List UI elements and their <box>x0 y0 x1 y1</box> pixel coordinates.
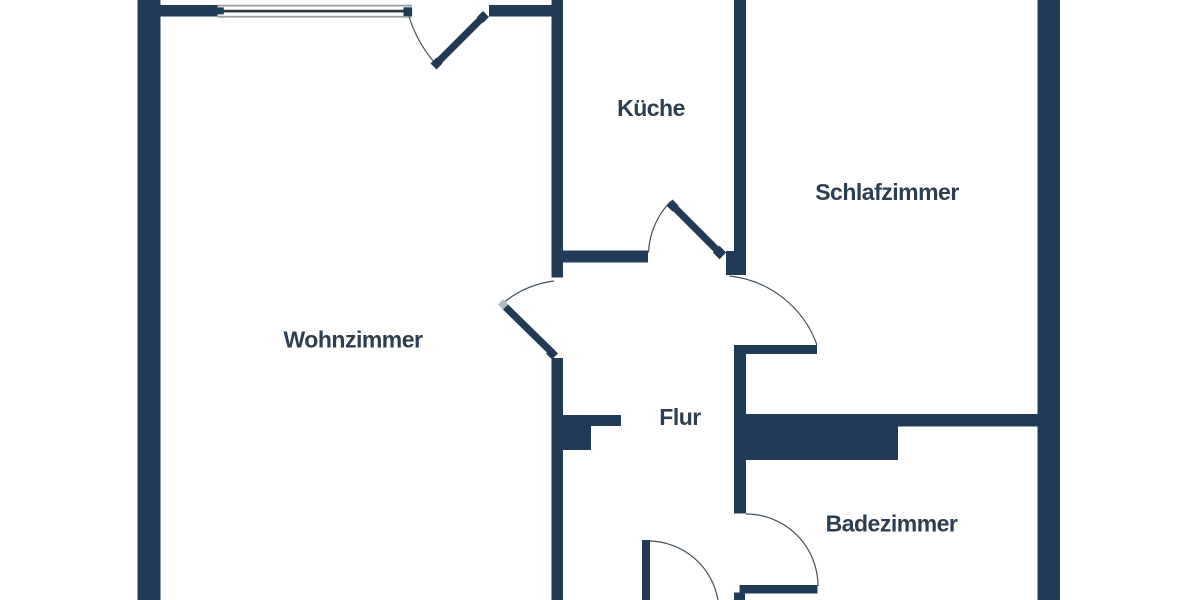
svg-text:Wohnzimmer: Wohnzimmer <box>284 326 424 352</box>
svg-text:Schlafzimmer: Schlafzimmer <box>815 179 959 205</box>
svg-text:Badezimmer: Badezimmer <box>826 511 958 537</box>
svg-text:Küche: Küche <box>617 95 685 121</box>
svg-text:Flur: Flur <box>659 404 701 430</box>
